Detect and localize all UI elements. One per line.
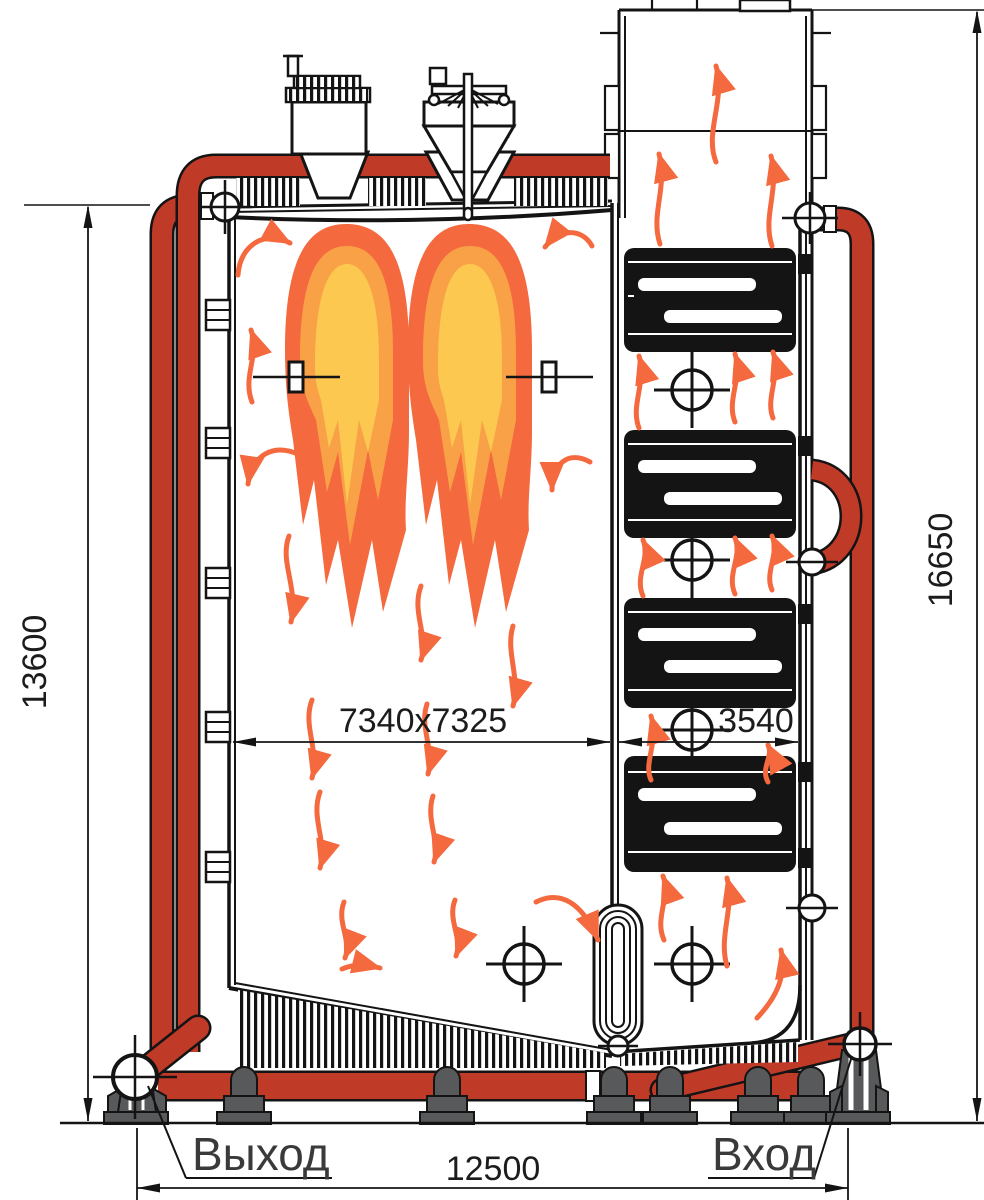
boiler-technical-drawing: 13600 16650 7340x7325 3540 12500 Выход: [0, 0, 984, 1200]
flow-arrow: [636, 356, 641, 428]
pipe-joint-symbol: [782, 192, 838, 244]
flow-arrow: [342, 965, 380, 969]
flow-arrow: [552, 458, 590, 490]
flow-arrow: [769, 156, 774, 246]
lower-tube-loop: [594, 905, 642, 1045]
coil-package-3: [624, 598, 812, 708]
dim-text-overall-length: 12500: [446, 1150, 541, 1188]
flow-arrow: [418, 586, 423, 660]
flow-arrow: [640, 540, 645, 596]
dim-text-right-height: 16650: [922, 513, 960, 608]
flow-arrow: [757, 950, 783, 1018]
flow-arrow: [309, 700, 314, 778]
flame-left: [285, 224, 409, 628]
flow-arrow: [511, 626, 516, 706]
coil-package-2: [624, 430, 812, 538]
flow-arrow: [724, 878, 729, 966]
duct-flange: [812, 134, 826, 178]
roof-fins: [368, 178, 426, 206]
flow-arrow: [771, 352, 776, 418]
flow-arrow: [238, 238, 290, 275]
flow-arrow: [248, 450, 300, 484]
flow-arrow: [286, 536, 293, 622]
flow-arrow: [732, 354, 737, 422]
coil-package-4: [624, 756, 812, 872]
dim-furnace-width: 7340x7325: [233, 702, 610, 747]
duct-flange: [605, 86, 619, 130]
flow-arrow: [545, 233, 592, 247]
burner-supply-pipe: [288, 56, 298, 76]
roof-fins: [236, 178, 300, 206]
floor-fins: [238, 990, 606, 1068]
dim-text-convective-width: 3540: [718, 702, 794, 740]
flow-arrow: [661, 876, 665, 940]
inlet-label: Вход: [712, 1128, 816, 1180]
burner-right: [424, 68, 514, 220]
duct-flange: [812, 86, 826, 130]
crosshair-symbol: [654, 352, 730, 428]
burner-lance: [464, 74, 472, 210]
flow-arrow: [770, 536, 775, 590]
pipe-joint-symbol: [786, 895, 838, 921]
outlet-label: Выход: [192, 1128, 330, 1180]
dim-text-furnace-width: 7340x7325: [339, 702, 507, 740]
flow-arrow: [317, 792, 322, 868]
coil-package-1: [624, 248, 812, 352]
dim-left-height: 13600: [16, 205, 150, 1121]
burner-flames: [285, 224, 532, 628]
flow-arrow: [431, 796, 436, 862]
flow-arrow: [712, 66, 718, 162]
dim-text-left-height: 13600: [16, 615, 54, 710]
flow-arrow: [249, 330, 254, 402]
flow-arrow: [342, 902, 347, 958]
chimney-stub: [740, 0, 790, 11]
roof-fins: [514, 178, 608, 206]
drawing-sheet: 13600 16650 7340x7325 3540 12500 Выход: [0, 0, 984, 1200]
flame-right: [408, 224, 532, 628]
flow-arrow: [732, 538, 737, 594]
inlet-nozzle: [828, 1012, 892, 1076]
flow-arrow: [536, 898, 598, 940]
wall-brackets: [206, 300, 230, 882]
flow-arrow: [453, 900, 458, 956]
crosshair-symbol: [486, 926, 562, 1002]
flow-arrow: [657, 154, 662, 244]
convective-shaft: [594, 218, 812, 1066]
